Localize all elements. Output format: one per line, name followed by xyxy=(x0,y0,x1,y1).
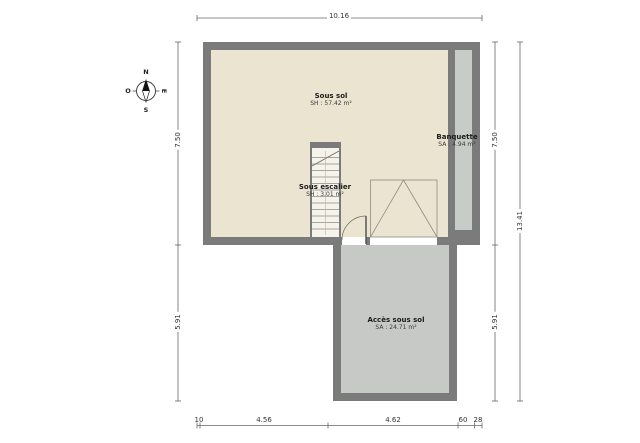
dimension-label-right-total: 13.41 xyxy=(516,209,524,233)
room-label-sous-escalier: Sous escalier SH : 3.01 m² xyxy=(299,183,351,198)
dimension-label-bottom-3: 60 xyxy=(459,416,468,424)
room-name: Sous sol xyxy=(310,92,352,100)
room-area: SH : 3.01 m² xyxy=(299,191,351,198)
dimension-label-bottom-1: 4.56 xyxy=(256,416,272,424)
room-name: Banquette xyxy=(436,133,477,141)
dimension-label-top: 10.16 xyxy=(327,12,351,20)
room-name: Accès sous sol xyxy=(367,316,424,324)
room-area: SA : 24.71 m² xyxy=(367,324,424,331)
dimension-label-left-upper: 7.50 xyxy=(174,130,182,150)
compass-west-label: O xyxy=(125,87,131,95)
dimension-label-bottom-4: 28 xyxy=(474,416,483,424)
compass-south-label: S xyxy=(144,106,149,114)
room-label-acces-sous-sol: Accès sous sol SA : 24.71 m² xyxy=(367,316,424,331)
room-name: Sous escalier xyxy=(299,183,351,191)
compass-rose xyxy=(133,80,160,102)
garage-door xyxy=(371,180,438,237)
room-area: SH : 57.42 m² xyxy=(310,100,352,107)
dimension-label-right-upper: 7.50 xyxy=(491,130,499,150)
compass-north-label: N xyxy=(143,68,148,76)
dimension-label-bottom-2: 4.62 xyxy=(385,416,401,424)
dimension-lines xyxy=(175,15,523,429)
room-label-sous-sol: Sous sol SH : 57.42 m² xyxy=(310,92,352,107)
compass-east-label: E xyxy=(160,89,168,93)
door-swing xyxy=(342,216,366,244)
plan-drawing xyxy=(0,0,640,443)
room-label-banquette: Banquette SA : 4.94 m² xyxy=(436,133,477,148)
dimension-label-bottom-0: 10 xyxy=(195,416,204,424)
dimension-label-left-lower: 5.91 xyxy=(174,312,182,332)
dimension-label-right-lower: 5.91 xyxy=(491,312,499,332)
room-area: SA : 4.94 m² xyxy=(436,141,477,148)
floor-plan: Sous sol SH : 57.42 m² Sous escalier SH … xyxy=(0,0,640,443)
